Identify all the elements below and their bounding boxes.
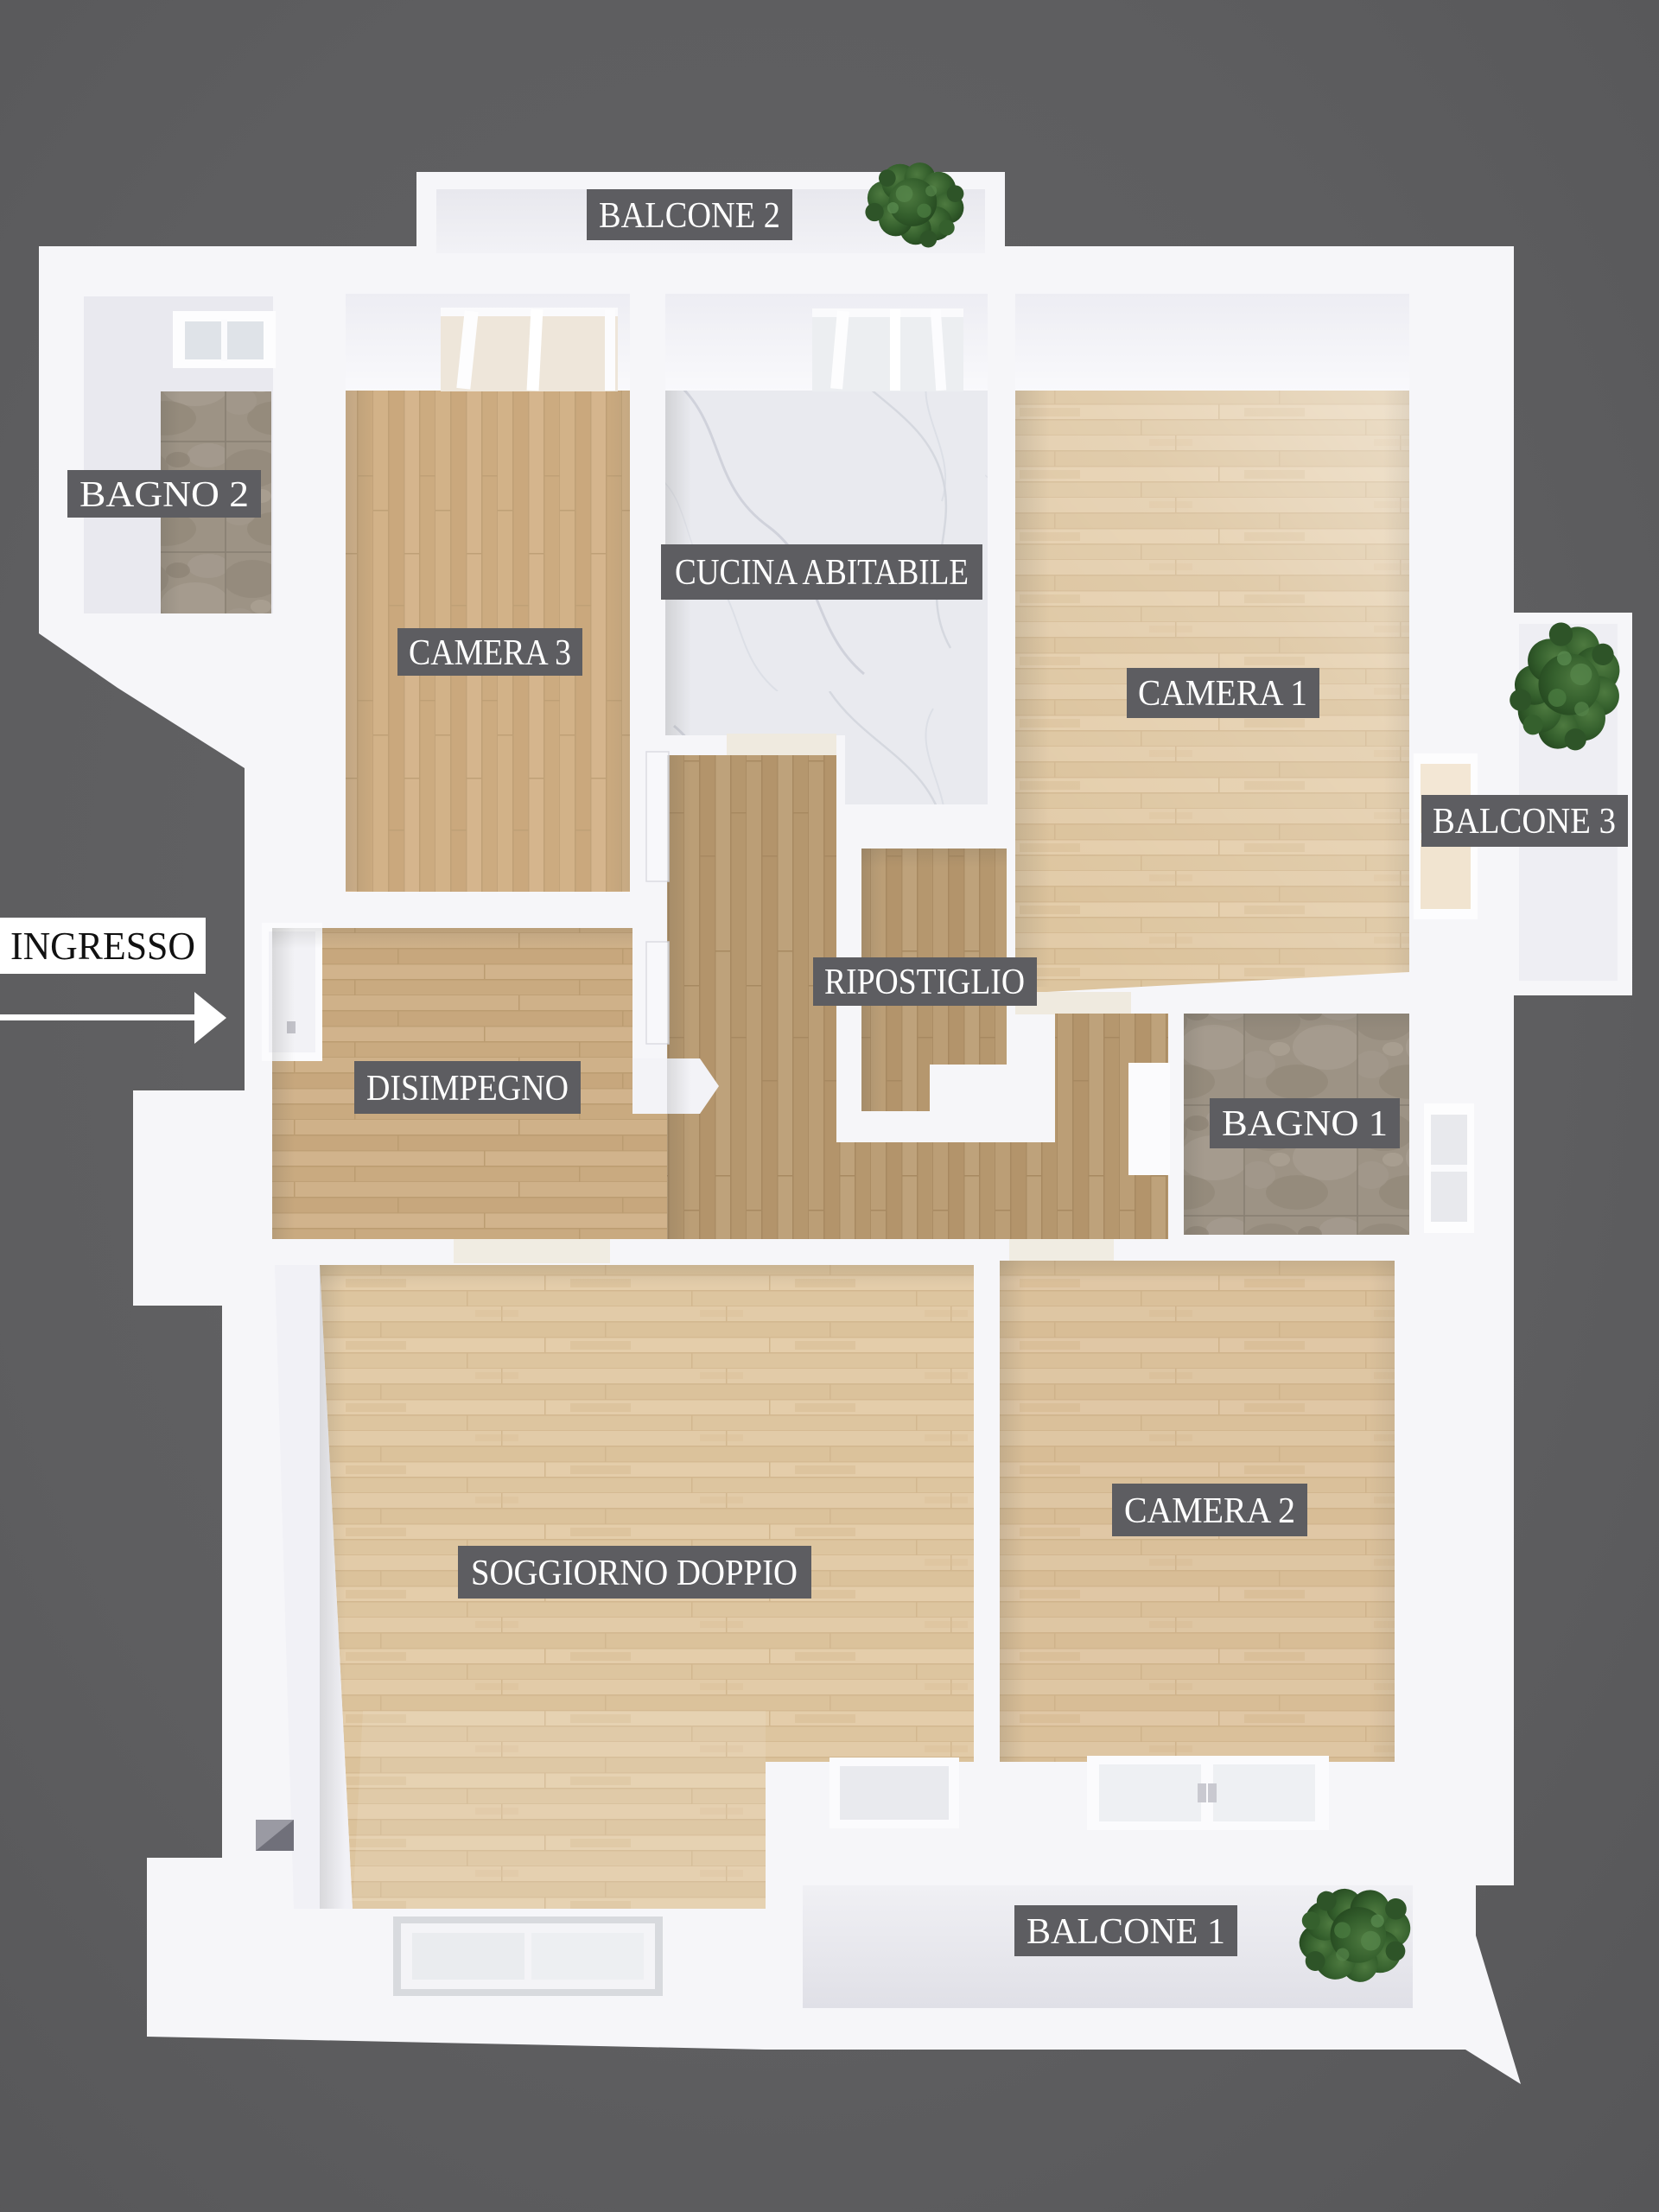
svg-text:BALCONE 1: BALCONE 1 [1027,1912,1225,1952]
svg-text:BAGNO 1: BAGNO 1 [1222,1104,1388,1144]
svg-text:CUCINA ABITABILE: CUCINA ABITABILE [675,553,969,593]
svg-text:SOGGIORNO DOPPIO: SOGGIORNO DOPPIO [471,1554,798,1593]
svg-text:BALCONE 2: BALCONE 2 [599,196,780,236]
svg-text:CAMERA 2: CAMERA 2 [1124,1491,1295,1531]
svg-text:RIPOSTIGLIO: RIPOSTIGLIO [824,963,1025,1002]
svg-text:BAGNO 2: BAGNO 2 [79,475,249,515]
svg-text:CAMERA 3: CAMERA 3 [409,633,571,673]
svg-text:BALCONE 3: BALCONE 3 [1433,802,1616,842]
svg-text:INGRESSO: INGRESSO [10,924,195,968]
svg-text:CAMERA 1: CAMERA 1 [1138,674,1307,714]
svg-text:DISIMPEGNO: DISIMPEGNO [366,1069,569,1109]
